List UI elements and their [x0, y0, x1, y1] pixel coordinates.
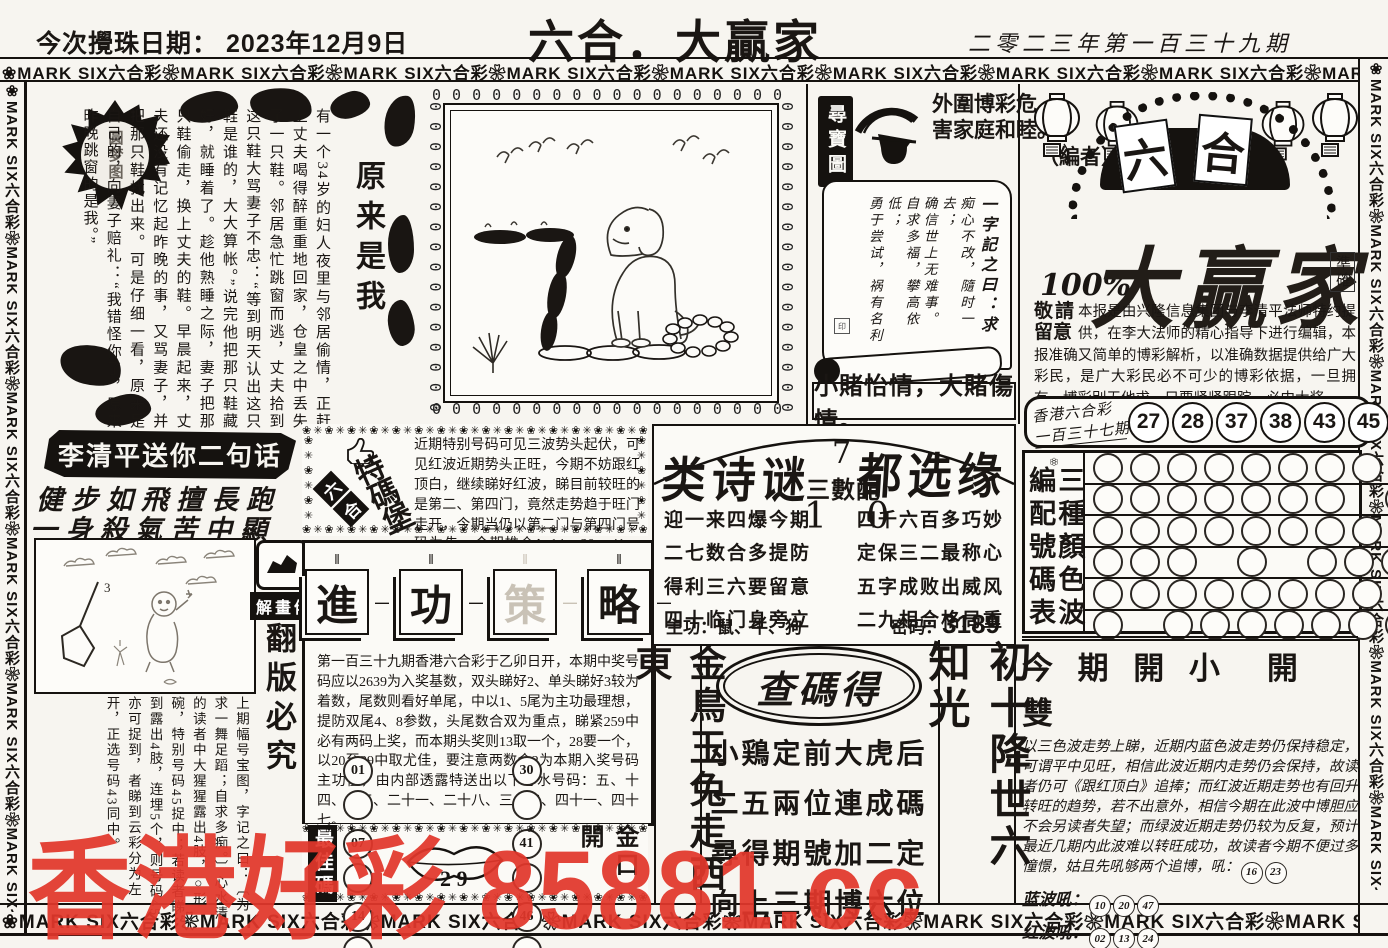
lantern-icon — [1030, 92, 1086, 178]
seal-char: 略 — [587, 569, 651, 635]
decoder-text: 上期幅号宝图，字记之曰：〔为求一舞足蹈；自求多痴。〕心水清的读者中大猩猩露出4肢… — [34, 696, 252, 924]
two-lines-banner: 李清平送你二句话 — [44, 430, 296, 479]
number-circle — [1241, 579, 1271, 609]
empty-slot — [1204, 549, 1230, 575]
seal-char: 功 — [399, 569, 463, 635]
rule — [24, 82, 27, 935]
rule — [806, 84, 808, 424]
number-circle — [1315, 453, 1345, 483]
number-circle — [1204, 484, 1234, 514]
forecast-text: 以三色波走势上睇，近期内蓝色波走势仍保持稳定，可谓平中见旺，相信此波近期内走势仍… — [1022, 739, 1358, 875]
poem-block: 类诗谜 都选缘 7 三數配 1 0 迎一来四爆今期 二七数合多提防 得利三六要留… — [652, 424, 1016, 646]
poem-line: 得利三六要留意 — [664, 571, 811, 604]
color-code-table: 編配號碼表 三種顏色波 — [1022, 450, 1362, 634]
special-number-fort: ❀✳❀✳❀✳❀✳❀✳❀✳❀✳❀✳❀✳❀✳❀✳❀✳❀✳❀✳❀✳❀✳❀✳❀✳❀✳❀✳… — [302, 424, 648, 536]
last-draw-numbers: 272837384345+40 — [1125, 402, 1388, 443]
red-wave-line: 红波吼：021324 — [1022, 919, 1358, 948]
password-label: 密码：3189 — [891, 609, 1000, 640]
number-circle — [1278, 453, 1308, 483]
chain-border-top: 0 0 0 0 0 0 0 0 0 0 0 0 0 0 0 0 0 0 0 0 … — [432, 86, 792, 104]
last-draw-box: 香港六合彩 一百三十七期 272837384345+40 — [1024, 396, 1372, 448]
number-circle — [1381, 547, 1388, 577]
scroll-text: 一字記之曰：求 痴心不改，隨时一去； 确信世上无难事。 自求多福，攀高依低； 勇… — [865, 196, 998, 356]
chain-border-left: 0 0 0 0 0 0 0 0 0 0 0 0 0 0 0 0 0 0 0 0 … — [426, 102, 444, 420]
table-label-col1: 三種顏色波 — [1054, 466, 1083, 631]
fort-body: 近期特别号码可见三波势头起伏，可见红波近期势头正旺，今期不妨跟红顶白，继续睇好红… — [414, 436, 640, 526]
number-circle — [1093, 516, 1123, 546]
winning-number: 43 — [1304, 402, 1345, 443]
number-circle — [1278, 579, 1308, 609]
empty-slot — [1274, 549, 1300, 575]
rule — [1018, 84, 1020, 424]
best-code-number: 01 — [343, 756, 373, 786]
red-wave-picks: 021324 — [1088, 923, 1160, 942]
best-code-row: 46 — [510, 900, 569, 948]
scroll-line: 自求多福，攀高依低； — [883, 196, 919, 356]
blue-wave-line: 蓝波吼：102047 — [1022, 886, 1358, 917]
red-pick-number: 02 — [1089, 928, 1111, 948]
blue-wave-picks: 102047 — [1088, 890, 1160, 909]
best-code-row: 30 — [510, 754, 569, 827]
number-circle — [1278, 516, 1308, 546]
best-codes-box: ❀✳❀✳❀✳❀✳❀✳❀✳❀✳❀✳❀✳❀✳❀✳❀✳❀✳❀✳❀✳❀✳❀✳❀✳❀✳❀✳… — [302, 824, 648, 902]
accuracy-seal: 準確 — [1330, 252, 1355, 292]
number-circle — [1204, 516, 1234, 546]
poem-line: 四千六百多巧妙 — [857, 504, 1004, 537]
empty-circle — [343, 936, 373, 948]
number-circle — [1241, 484, 1271, 514]
rock-icon — [256, 540, 308, 590]
number-circle — [1167, 453, 1197, 483]
empty-circle — [512, 790, 542, 820]
scroll-line: 痴心不改，隨时一去； — [938, 196, 974, 356]
number-circle — [1344, 547, 1374, 577]
number-circle — [1352, 453, 1382, 483]
riddle-drawing — [445, 105, 777, 401]
number-circle — [1093, 547, 1123, 577]
empty-circle — [343, 863, 373, 893]
gamble-caption-box: 小賭怡情，大賭傷情。 — [812, 382, 1016, 420]
winning-number: 27 — [1128, 402, 1169, 443]
number-circle — [1130, 484, 1160, 514]
headline-calligraphy-left: 类诗谜 — [660, 441, 814, 511]
poem-line: 二七数合多提防 — [664, 537, 811, 570]
number-circle — [1315, 516, 1345, 546]
scroll-seal: 印 — [834, 318, 850, 334]
number-circle — [1352, 579, 1382, 609]
pick-number: 23 — [1265, 862, 1287, 884]
net-number-text: 3 — [104, 580, 111, 595]
winning-number: 38 — [1260, 402, 1301, 443]
lips-numbers: 2 9 — [440, 866, 468, 891]
poem-line: 五字成败出威风 — [857, 571, 1004, 604]
color-table-row — [1085, 485, 1388, 517]
riddle-picture — [443, 103, 779, 403]
rainbow-pot-icon — [852, 88, 924, 166]
password-value: 3189 — [942, 609, 1000, 639]
number-circle — [1204, 579, 1234, 609]
check-line: 二五兩位連成碼 — [710, 790, 927, 818]
scroll-line: 确信世上无难事。 — [919, 196, 937, 356]
forecast-article: 今 期 開 小 開 雙 以三色波走势上睇，近期内蓝色波走势仍保持稳定，可谓平中见… — [1022, 636, 1358, 909]
chushi-column: 初十降世六知光 — [940, 640, 1016, 904]
decoder-picture: 3 — [34, 538, 256, 694]
notice-body: 本报是由兴隆信息集团与李清平法师特约提供，在李大法师的精心指导下进行编辑，本报准… — [1034, 304, 1356, 407]
number-circle — [1093, 579, 1123, 609]
empty-circle — [343, 790, 373, 820]
color-table-row — [1085, 579, 1388, 611]
border-strip-left: ❀MARK SIX六合彩❀MARK SIX六合彩❀MARK SIX六合彩❀MAR… — [0, 82, 22, 912]
winning-number: 28 — [1172, 402, 1213, 443]
number-circle — [1130, 579, 1160, 609]
lips-graphic: 2 9 — [400, 834, 510, 892]
number-circle — [1241, 516, 1271, 546]
winning-number: 37 — [1216, 402, 1257, 443]
color-table-row — [1085, 516, 1388, 548]
copyright-warning: 翻版必究 — [256, 622, 301, 792]
forecast-headline: 今 期 開 小 開 雙 — [1022, 643, 1358, 733]
chain-border-right: 0 0 0 0 0 0 0 0 0 0 0 0 0 0 0 0 0 0 0 0 … — [778, 102, 796, 420]
best-code-number: 46 — [512, 902, 542, 932]
zodiac-hint: 主功：鼠、牛、狗 — [666, 613, 802, 638]
number-circle — [1241, 453, 1271, 483]
color-table-rows — [1085, 453, 1388, 631]
number-circle — [1167, 516, 1197, 546]
strategy-title: 進 功 策 略 — [305, 569, 651, 635]
number-circle — [1167, 579, 1197, 609]
ink-blob — [327, 88, 372, 123]
best-code-row: 01 — [341, 754, 400, 827]
best-code-number: 30 — [512, 756, 542, 786]
arch-char: 合 — [1193, 114, 1253, 186]
ink-blob — [385, 298, 417, 347]
pick-number: 16 — [1241, 862, 1263, 884]
draw-date: 今次攪珠日期： 2023年12月9日 — [36, 24, 408, 60]
check-code-oval: 查碼得 — [716, 646, 922, 726]
poem-line: 迎一来四爆今期 — [664, 504, 811, 537]
newspaper-page: 今次攪珠日期： 2023年12月9日 六合．大贏家 二零二三年第一百三十九期 ❀… — [0, 0, 1388, 948]
color-table-label: 編配號碼表 三種顏色波 — [1025, 453, 1085, 631]
best-code-number: 14 — [343, 902, 373, 932]
number-circle — [1130, 453, 1160, 483]
check-code-title: 查碼得 — [756, 659, 882, 714]
number-circle — [1130, 547, 1160, 577]
red-pick-number: 24 — [1137, 928, 1159, 948]
last-draw-label: 香港六合彩 一百三十七期 — [1031, 396, 1127, 448]
scroll-line: 勇于尝试，祸有名利 — [865, 196, 883, 356]
check-line: 向上三期博六位 — [710, 890, 927, 918]
number-circle — [1307, 547, 1337, 577]
number-circle — [1167, 547, 1197, 577]
scroll-graphic: 一字記之曰：求 痴心不改，隨时一去； 确信世上无难事。 自求多福，攀高依低； 勇… — [822, 180, 1012, 370]
combo-digit-top: 7 — [832, 436, 851, 471]
best-code-row: 07 — [341, 827, 400, 900]
notice-lead: 敬請留意 — [1034, 302, 1074, 344]
best-code-row: 41 — [510, 827, 569, 900]
flower-border: ❀✳❀✳❀✳❀✳❀✳❀✳ — [302, 434, 315, 526]
table-label-col2: 編配號碼表 — [1025, 466, 1054, 631]
arch-char: 六 — [1114, 119, 1177, 194]
color-table-row — [1085, 453, 1388, 485]
ink-blob — [388, 215, 414, 273]
scroll-title: 一字記之曰：求 — [974, 196, 998, 356]
color-table-row — [1085, 548, 1388, 580]
treasure-map-label: 尋寶圖 — [818, 96, 853, 187]
best-code-right-nums: 304146 — [510, 754, 569, 948]
winning-number: 45 — [1348, 402, 1388, 443]
number-circle — [1204, 453, 1234, 483]
best-code-left-nums: 010714 — [341, 754, 400, 948]
blue-pick-number: 47 — [1137, 895, 1159, 917]
forecast-body: 以三色波走势上睇，近期内蓝色波走势仍保持稳定，可谓平中见旺，相信此波近期内走势仍… — [1022, 737, 1358, 884]
publisher-notice: 敬請留意本报是由兴隆信息集团与李清平法师特约提供，在李大法师的精心指导下进行编辑… — [1034, 302, 1356, 392]
rule — [0, 80, 1360, 82]
number-circle — [1130, 516, 1160, 546]
flower-border: ❀✳❀✳❀✳❀✳❀✳❀✳❀✳❀✳❀✳❀✳❀✳❀✳❀✳❀✳❀✳❀✳❀✳❀✳❀✳❀✳… — [302, 822, 648, 835]
blue-pick-number: 10 — [1089, 895, 1111, 917]
empty-circle — [512, 863, 542, 893]
markssix-flower-icon — [1028, 457, 1080, 466]
seal-char-faded: 策 — [493, 569, 557, 635]
best-code-label: 最佳碼 — [308, 825, 337, 902]
empty-slot — [1130, 612, 1156, 638]
poem-line: 定保三二最称心 — [857, 537, 1004, 570]
red-wave-label: 红波吼： — [1022, 923, 1088, 942]
empty-circle — [512, 936, 542, 948]
number-circle — [1315, 484, 1345, 514]
empty-slot — [1352, 486, 1378, 512]
best-code-row: 14 — [341, 900, 400, 948]
blue-pick-number: 20 — [1113, 895, 1135, 917]
red-pick-number: 13 — [1113, 928, 1135, 948]
check-code-column: 查碼得 小鶏定前大虎后 二五兩位連成碼 尋得期號加二定 向上三期博六位 — [700, 640, 940, 904]
seal-char: 進 — [305, 569, 369, 635]
number-circle — [1278, 484, 1308, 514]
number-circle — [1093, 453, 1123, 483]
thumbs-up-icon — [344, 438, 374, 464]
issue-number: 二零二三年第一百三十九期 — [968, 26, 1292, 58]
password-prefix: 密码： — [891, 618, 942, 637]
number-circle — [1237, 547, 1267, 577]
check-line: 小鶏定前大虎后 — [710, 740, 927, 768]
flower-border: ❀✳❀✳❀✳❀✳❀✳❀✳❀✳❀✳❀✳❀✳❀✳❀✳❀✳❀✳❀✳❀✳❀✳❀✳❀✳❀✳… — [302, 891, 648, 904]
number-circle — [1352, 516, 1382, 546]
ink-blob — [381, 93, 420, 149]
gold-bird-column: 金鳥玉兔走西東 — [654, 644, 702, 904]
story-title: 原来是我 — [345, 160, 389, 320]
number-circle — [1093, 484, 1123, 514]
story-text: 有一个34岁的妇人夜里与邻居偷情，正赶上丈夫喝得醉重重地回家，仓皇之中丢失了一只… — [45, 108, 333, 430]
check-line: 尋得期號加二定 — [710, 840, 927, 868]
chushi-text: 初十降世六知光 — [916, 640, 1038, 904]
number-circle — [1167, 484, 1197, 514]
number-circle — [1315, 579, 1345, 609]
forecast-first-picks: 1623 — [1240, 859, 1288, 875]
